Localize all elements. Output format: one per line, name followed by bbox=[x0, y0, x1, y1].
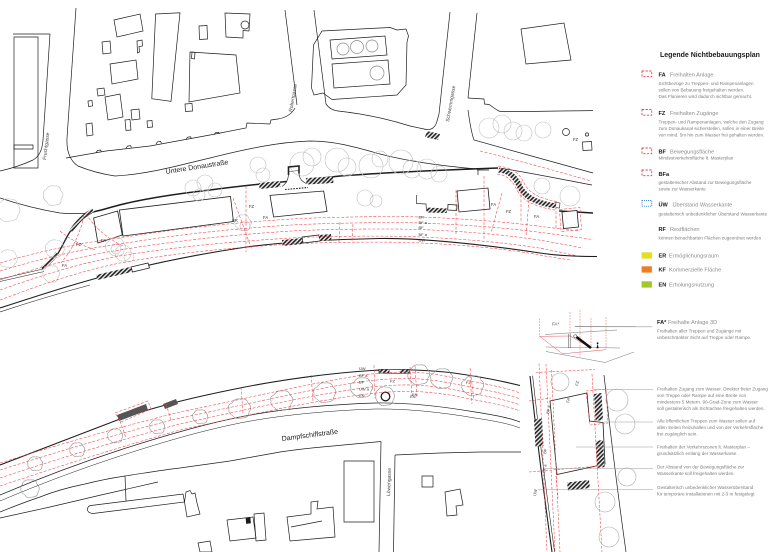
svg-text:EN: EN bbox=[659, 283, 667, 289]
svg-text:soll gestalterisch als Sichtac: soll gestalterisch als Sichtachse freige… bbox=[657, 406, 765, 411]
svg-text:FA: FA bbox=[101, 238, 106, 243]
svg-text:KF: KF bbox=[659, 268, 667, 274]
svg-text:für temporäre Installationen m: für temporäre Installationen mit 2-3 m f… bbox=[657, 492, 755, 497]
svg-text:zum Donaukanal sicherstellen,: zum Donaukanal sicherstellen, sollen in … bbox=[659, 126, 765, 131]
svg-text:BF a: BF a bbox=[419, 232, 428, 237]
svg-text:Mindestverkehrsfläche lt. Mast: Mindestverkehrsfläche lt. Masterplan bbox=[659, 156, 734, 161]
svg-text:unbeschränkter Sicht auf Trepp: unbeschränkter Sicht auf Treppe oder Ram… bbox=[657, 335, 751, 340]
svg-text:Legende Nichtbebauungsplan: Legende Nichtbebauungsplan bbox=[660, 52, 760, 59]
svg-text:ER: ER bbox=[659, 254, 667, 260]
svg-text:frei zugänglich sein.: frei zugänglich sein. bbox=[657, 432, 698, 437]
svg-text:Der Abstand von der Bewegungsf: Der Abstand von der Bewegungsfläche zur bbox=[657, 465, 745, 470]
svg-text:BF: BF bbox=[359, 380, 365, 385]
svg-text:Wasserkante soll freigehalten: Wasserkante soll freigehalten werden. bbox=[657, 471, 735, 476]
svg-text:FA: FA bbox=[491, 202, 496, 207]
svg-text:Kommerzielle Fläche: Kommerzielle Fläche bbox=[669, 268, 721, 274]
svg-text:grundsätzlich entlang der Wass: grundsätzlich entlang der Wasserkante. bbox=[657, 451, 738, 456]
svg-text:FA*: FA* bbox=[657, 320, 667, 326]
svg-text:Freihalten aller Treppen und Z: Freihalten aller Treppen und Zugänge mit bbox=[657, 329, 742, 334]
svg-text:ER: ER bbox=[232, 218, 238, 223]
svg-text:BF a: BF a bbox=[359, 373, 368, 378]
svg-text:FZ: FZ bbox=[249, 204, 255, 209]
svg-text:allen Seiten freizuhalten und: allen Seiten freizuhalten und von der Ve… bbox=[657, 425, 764, 430]
svg-text:sollen von Bebauung freigehalt: sollen von Bebauung freigehalten werden. bbox=[659, 88, 745, 93]
svg-text:Freihalten Zugänge: Freihalten Zugänge bbox=[670, 111, 719, 117]
svg-text:BFa: BFa bbox=[659, 172, 670, 178]
svg-text:ÜW a: ÜW a bbox=[359, 387, 370, 392]
svg-text:FA: FA bbox=[62, 263, 67, 268]
svg-text:FZ: FZ bbox=[573, 137, 579, 142]
svg-text:mindestens 5 Metern. 90-Grad-Z: mindestens 5 Metern. 90-Grad-Zone zum Wa… bbox=[657, 400, 758, 405]
svg-text:von mind. 5m hin zum Wasser fr: von mind. 5m hin zum Wasser frei gehalte… bbox=[659, 133, 765, 138]
svg-text:Ermöglichungsraum: Ermöglichungsraum bbox=[669, 254, 719, 260]
svg-text:Sichtbezüge zu Treppen- und Ra: Sichtbezüge zu Treppen- und Rampenanlage… bbox=[659, 81, 754, 86]
svg-text:FA: FA bbox=[659, 73, 666, 79]
svg-text:gestalterischer Abstand zur Be: gestalterischer Abstand zur Bewegungsflä… bbox=[659, 180, 752, 185]
svg-text:Alle öffentlichen Treppen zum: Alle öffentlichen Treppen zum Wasser sol… bbox=[657, 419, 756, 424]
svg-text:Überstand Wasserkante: Überstand Wasserkante bbox=[673, 202, 733, 209]
svg-text:FA: FA bbox=[263, 215, 268, 220]
svg-text:FZ: FZ bbox=[506, 209, 512, 214]
svg-text:sowie zur Wasserkante: sowie zur Wasserkante bbox=[659, 187, 707, 192]
svg-text:Freihalten Anlage: Freihalten Anlage bbox=[670, 73, 714, 79]
svg-text:von Treppe oder Rampe auf eine: von Treppe oder Rampe auf eine Breite vo… bbox=[657, 393, 747, 398]
svg-text:EN: EN bbox=[359, 393, 365, 398]
svg-text:ÜW: ÜW bbox=[659, 202, 669, 209]
svg-text:Das Flanieren wird dadurch sic: Das Flanieren wird dadurch sichtbar gema… bbox=[659, 94, 753, 99]
svg-text:FZ: FZ bbox=[76, 242, 82, 247]
svg-text:gestalterisch unbedenklicher Ü: gestalterisch unbedenklicher Überstand W… bbox=[659, 211, 768, 217]
svg-text:ER: ER bbox=[419, 214, 425, 219]
svg-text:FZ: FZ bbox=[466, 380, 471, 385]
svg-text:BF: BF bbox=[419, 225, 425, 230]
svg-text:BF a: BF a bbox=[419, 220, 428, 225]
svg-text:Gestalterisch unbedenklicher W: Gestalterisch unbedenklicher Wasserübers… bbox=[657, 485, 754, 490]
svg-text:EN: EN bbox=[410, 394, 416, 399]
svg-text:Freihalten der Verkehrszonen l: Freihalten der Verkehrszonen lt. Masterp… bbox=[657, 445, 750, 450]
svg-text:Freihalten Zugang zum Wasser.: Freihalten Zugang zum Wasser. Direkter f… bbox=[657, 387, 768, 392]
svg-text:Treppen- und Rampenanlagen, we: Treppen- und Rampenanlagen, welche den Z… bbox=[659, 120, 764, 125]
svg-text:FZ: FZ bbox=[659, 111, 666, 117]
svg-text:Freihalte Anlage 3D: Freihalte Anlage 3D bbox=[668, 320, 717, 326]
svg-text:Löwengasse: Löwengasse bbox=[386, 468, 393, 496]
svg-text:ÜW: ÜW bbox=[359, 366, 366, 371]
svg-text:können benachbarten Flächen zu: können benachbarten Flächen zugeordnet w… bbox=[659, 236, 762, 241]
svg-text:Erholungsnutzung: Erholungsnutzung bbox=[669, 283, 714, 289]
svg-text:FZ: FZ bbox=[390, 379, 395, 384]
svg-text:ÜW: ÜW bbox=[419, 238, 426, 243]
svg-text:RF: RF bbox=[659, 227, 667, 233]
svg-text:FA*: FA* bbox=[552, 322, 560, 327]
svg-text:FA: FA bbox=[534, 214, 539, 219]
svg-text:Restflächen: Restflächen bbox=[670, 227, 700, 233]
